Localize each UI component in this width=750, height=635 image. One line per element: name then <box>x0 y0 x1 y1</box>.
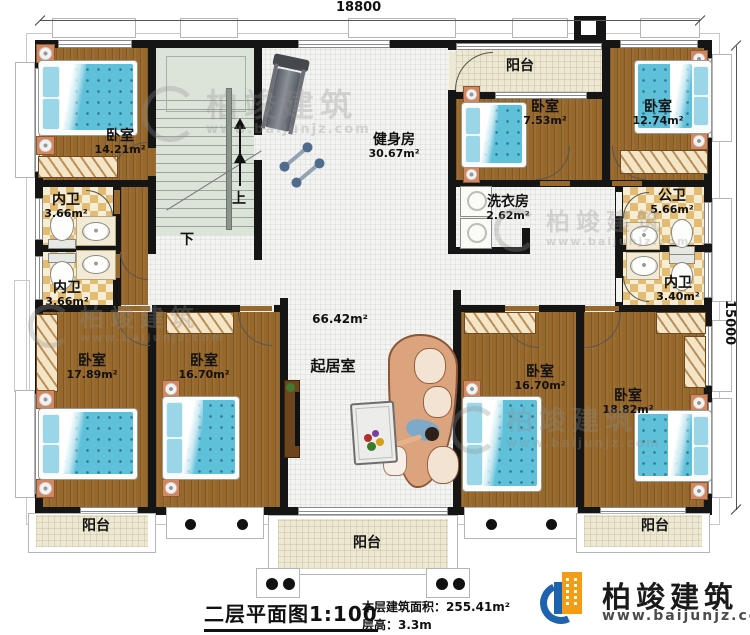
room-label-balcony-bottom-center: 阳台 <box>327 536 407 551</box>
wardrobe <box>656 312 706 334</box>
dimension-line-right <box>736 46 737 510</box>
sink <box>82 222 110 241</box>
sink <box>630 226 658 246</box>
room-label-living: 起居室 <box>283 359 383 375</box>
bed-blanket-fold <box>483 400 503 486</box>
stair-landing <box>166 56 246 112</box>
sill-top-1 <box>52 18 136 38</box>
nightstand <box>36 390 55 409</box>
wall-corridor-right <box>148 176 156 254</box>
bay-window-left <box>166 507 264 539</box>
bay-window-right <box>464 507 578 539</box>
sill-right-1 <box>712 54 732 142</box>
bed-blanket-fold <box>668 414 692 476</box>
door-gap-bedroomTmid <box>540 181 570 186</box>
bed-pillow <box>465 107 481 135</box>
wall-laundry-stub <box>522 228 530 254</box>
room-label-laundry: 洗衣房 2.62m² <box>458 195 558 221</box>
wardrobe <box>464 312 536 334</box>
window-bottom-center <box>298 507 448 515</box>
bay-column <box>546 519 557 530</box>
nightstand <box>690 132 708 150</box>
dimension-width: 18800 <box>336 0 381 15</box>
floor-plan: 上 下 <box>0 0 750 635</box>
wall-bedroomsTop-bottom <box>456 180 712 187</box>
door-gap-bedroomBR <box>585 306 619 311</box>
room-label-bedroom-bottom-left: 卧室 17.89m² <box>42 354 142 380</box>
wardrobe <box>38 156 118 178</box>
nightstand <box>36 136 55 155</box>
sofa-cushion <box>414 348 446 384</box>
bed-blanket-fold <box>60 64 86 130</box>
room-label-bedroom-top-left: 卧室 14.21m² <box>70 129 170 155</box>
sink <box>82 255 110 274</box>
window-top-3 <box>620 40 698 48</box>
pier-column <box>266 578 278 590</box>
stairs-down-label: 下 <box>180 229 194 249</box>
sofa-cushion <box>423 386 452 418</box>
door-gap-bedroomBML <box>240 306 272 311</box>
nightstand <box>36 479 55 498</box>
sill-top-4 <box>512 18 568 38</box>
bay-column <box>486 519 497 530</box>
bed-pillow <box>693 446 709 476</box>
stair-arrow-head <box>234 118 246 129</box>
room-label-balcony-bottom-right: 阳台 <box>615 519 695 534</box>
nightstand <box>162 479 180 497</box>
floor-area-text: 本层建筑面积：255.41m² <box>362 598 510 615</box>
sill-left-2 <box>15 390 35 498</box>
door-gap-bedroomTright <box>612 181 642 186</box>
floor-corridor-left <box>121 187 148 305</box>
bed-blanket-fold <box>183 400 203 474</box>
room-label-bedroom-top-right: 卧室 12.74m² <box>608 100 708 126</box>
room-label-balcony-top: 阳台 <box>480 59 560 74</box>
stair-arrow-head-2 <box>234 152 246 163</box>
sill-top-5 <box>640 18 700 38</box>
plant <box>286 383 295 392</box>
dimension-height: 15000 <box>722 300 737 345</box>
window-balcony-top <box>456 43 602 50</box>
sill-top-3 <box>348 18 456 38</box>
room-label-bedroom-bottom-mid-left: 卧室 16.70m² <box>154 354 254 380</box>
room-label-bath-public: 公卫 5.66m² <box>622 189 722 215</box>
window-bedroomTmid <box>495 92 587 99</box>
door-gap-balcony-top <box>449 52 455 90</box>
pier-column <box>283 578 295 590</box>
wall-bedroomTL-bottom <box>35 180 156 187</box>
room-label-balcony-bottom-left: 阳台 <box>56 519 136 534</box>
door-gap-bath-inner-right <box>616 278 622 302</box>
wardrobe <box>36 314 58 392</box>
wall-gym-right-a <box>448 40 456 50</box>
bay-column <box>237 519 248 530</box>
sill-right-4 <box>712 398 732 498</box>
door-gap-bedroomBL <box>118 306 150 311</box>
wall-bottom-row-e <box>539 305 585 312</box>
room-label-bath-inner-right: 内卫 3.40m² <box>628 276 728 302</box>
chimney-flue <box>581 21 596 35</box>
room-label-gym: 健身房 30.67m² <box>344 133 444 159</box>
floor-height-text: 层高：3.3m <box>362 616 432 633</box>
bed-pillow <box>166 402 183 438</box>
bed-pillow <box>693 66 709 96</box>
pier-column <box>453 578 465 590</box>
bed-blanket-fold <box>60 412 84 474</box>
nightstand <box>463 86 480 103</box>
sink <box>630 256 658 276</box>
window-top-2 <box>298 40 390 48</box>
brand-url: www.baijunjz.com <box>602 608 750 624</box>
bed-pillow <box>42 98 60 130</box>
room-label-bedroom-bottom-right: 卧室 18.82m² <box>578 389 678 415</box>
dimension-line-top <box>40 20 700 21</box>
window-top-1 <box>58 40 132 48</box>
room-label-bath-left-bottom: 内卫 3.66m² <box>17 281 117 307</box>
bay-column <box>185 519 196 530</box>
bed-pillow <box>466 444 483 486</box>
bed-pillow <box>42 66 60 98</box>
wall-stairs-right-lower <box>254 160 262 260</box>
room-label-bedroom-bottom-mid-right: 卧室 16.70m² <box>490 365 590 391</box>
plan-title: 二层平面图1:100 <box>204 598 378 632</box>
bed-pillow <box>693 416 709 446</box>
tv <box>295 392 300 446</box>
nightstand <box>463 166 480 183</box>
bed-pillow <box>465 135 481 163</box>
room-label-bedroom-top-mid: 卧室 7.53m² <box>495 100 595 126</box>
person-head <box>425 427 439 441</box>
washing-machine <box>460 218 492 249</box>
stair-railing <box>226 88 232 230</box>
bed-pillow <box>42 444 60 474</box>
nightstand <box>690 482 708 500</box>
wardrobe <box>684 336 706 388</box>
wall-bottom-row-b <box>152 305 240 312</box>
sofa-cushion <box>427 446 459 484</box>
wall-gym-right-b <box>448 90 456 185</box>
door-gap-bedroomBMR <box>505 306 539 311</box>
table-flowers <box>362 428 388 454</box>
brand-logo-icon <box>540 570 596 628</box>
bed-pillow <box>42 414 60 444</box>
living-area-value: 66.42m² <box>290 313 390 326</box>
wardrobe <box>166 312 234 334</box>
wall-bottom-row-f <box>619 305 712 312</box>
bed-pillow <box>466 402 483 444</box>
wardrobe <box>620 150 708 174</box>
pier-column <box>436 578 448 590</box>
bed-pillow <box>166 438 183 474</box>
sill-top-2 <box>180 18 238 38</box>
wall-laundry-left <box>448 185 456 254</box>
room-label-bath-left-top: 内卫 3.66m² <box>16 193 116 219</box>
sill-left-1 <box>15 62 35 178</box>
stairs-up-label: 上 <box>232 188 246 208</box>
